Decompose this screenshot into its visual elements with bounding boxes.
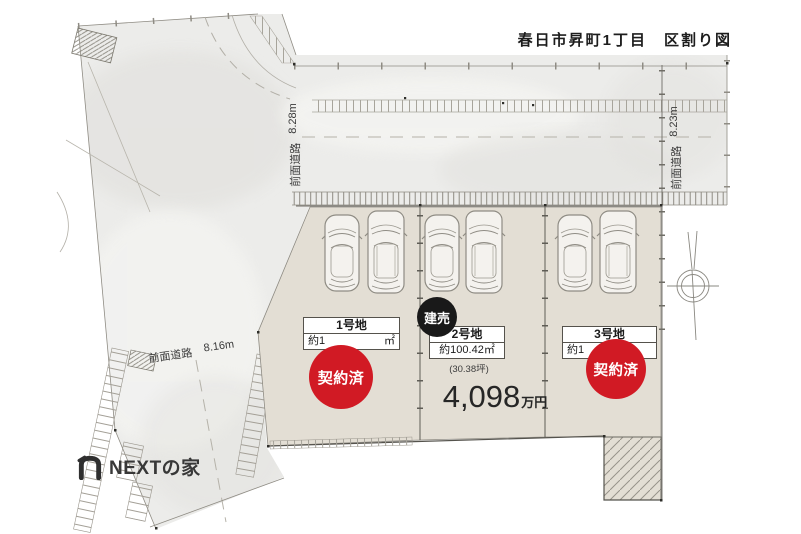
car-icon [365, 211, 407, 293]
lot-2-area: 約100.42㎡ [430, 343, 504, 358]
site-plan-page: 春日市昇町1丁目 区割り図 前面道路 8.28m 前面道路 8.23m 前面道路… [0, 0, 801, 534]
car-icon [597, 211, 639, 293]
car-icon [322, 215, 362, 291]
car-icon [555, 215, 595, 291]
lot-1-label-box: 1号地 約1 ㎡ [303, 317, 400, 350]
lot-2-tsubo: (30.38坪) [429, 361, 509, 375]
lot-2-for-sale-badge: 建売 [417, 297, 457, 337]
lot-2-price: 4,098万円 [425, 379, 565, 415]
company-logo-text: NEXTの家 [109, 453, 201, 480]
company-logo: NEXTの家 [77, 453, 201, 480]
lot-3-hatched-area [604, 437, 661, 500]
lot-1-sold-badge: 契約済 [309, 345, 373, 409]
road-width: 8.23m [668, 106, 682, 137]
road-name: 前面道路 [287, 143, 301, 187]
price-unit: 万円 [521, 395, 547, 410]
survey-marker-icon [667, 231, 719, 340]
lot-3-sold-badge: 契約済 [586, 339, 646, 399]
sidewalk-hatch-top [312, 100, 727, 112]
lot-1-area-left: 約1 [308, 334, 325, 349]
car-icon [463, 211, 505, 293]
lot-1-name: 1号地 [304, 318, 399, 334]
parked-cars [322, 211, 639, 293]
lot-3-area-left: 約1 [567, 343, 584, 358]
road-label-top: 前面道路 8.28m [287, 89, 301, 201]
road-width: 8.28m [287, 103, 301, 134]
page-title: 春日市昇町1丁目 区割り図 [518, 29, 732, 50]
road-name: 前面道路 [668, 146, 682, 190]
price-value: 4,098 [443, 379, 521, 414]
road-label-right: 前面道路 8.23m [668, 92, 682, 204]
lot-1-area-right: ㎡ [384, 334, 395, 349]
car-icon [422, 215, 462, 291]
next-home-logo-icon [77, 454, 103, 480]
